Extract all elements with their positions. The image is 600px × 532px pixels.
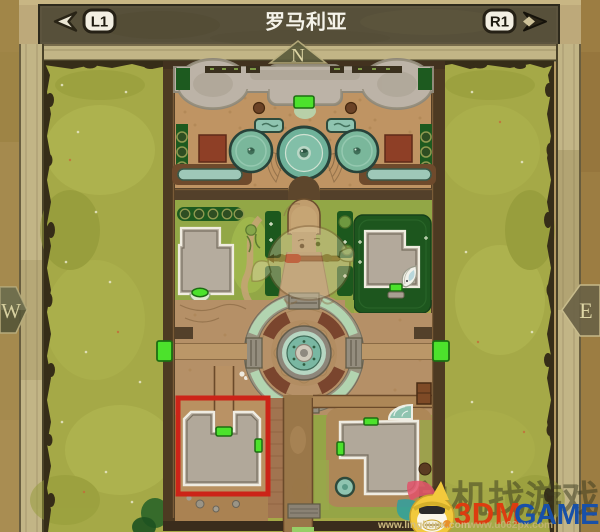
- svg-text:E: E: [579, 298, 592, 323]
- svg-text:R1: R1: [490, 14, 509, 31]
- svg-text:W: W: [1, 299, 21, 323]
- svg-text:L1: L1: [91, 14, 109, 31]
- svg-text:www.lingliupx.com: www.lingliupx.com: [377, 520, 470, 531]
- svg-text:www.u062px.com: www.u062px.com: [467, 520, 553, 531]
- svg-text:N: N: [291, 46, 305, 67]
- svg-text:罗马利亚: 罗马利亚: [265, 11, 347, 34]
